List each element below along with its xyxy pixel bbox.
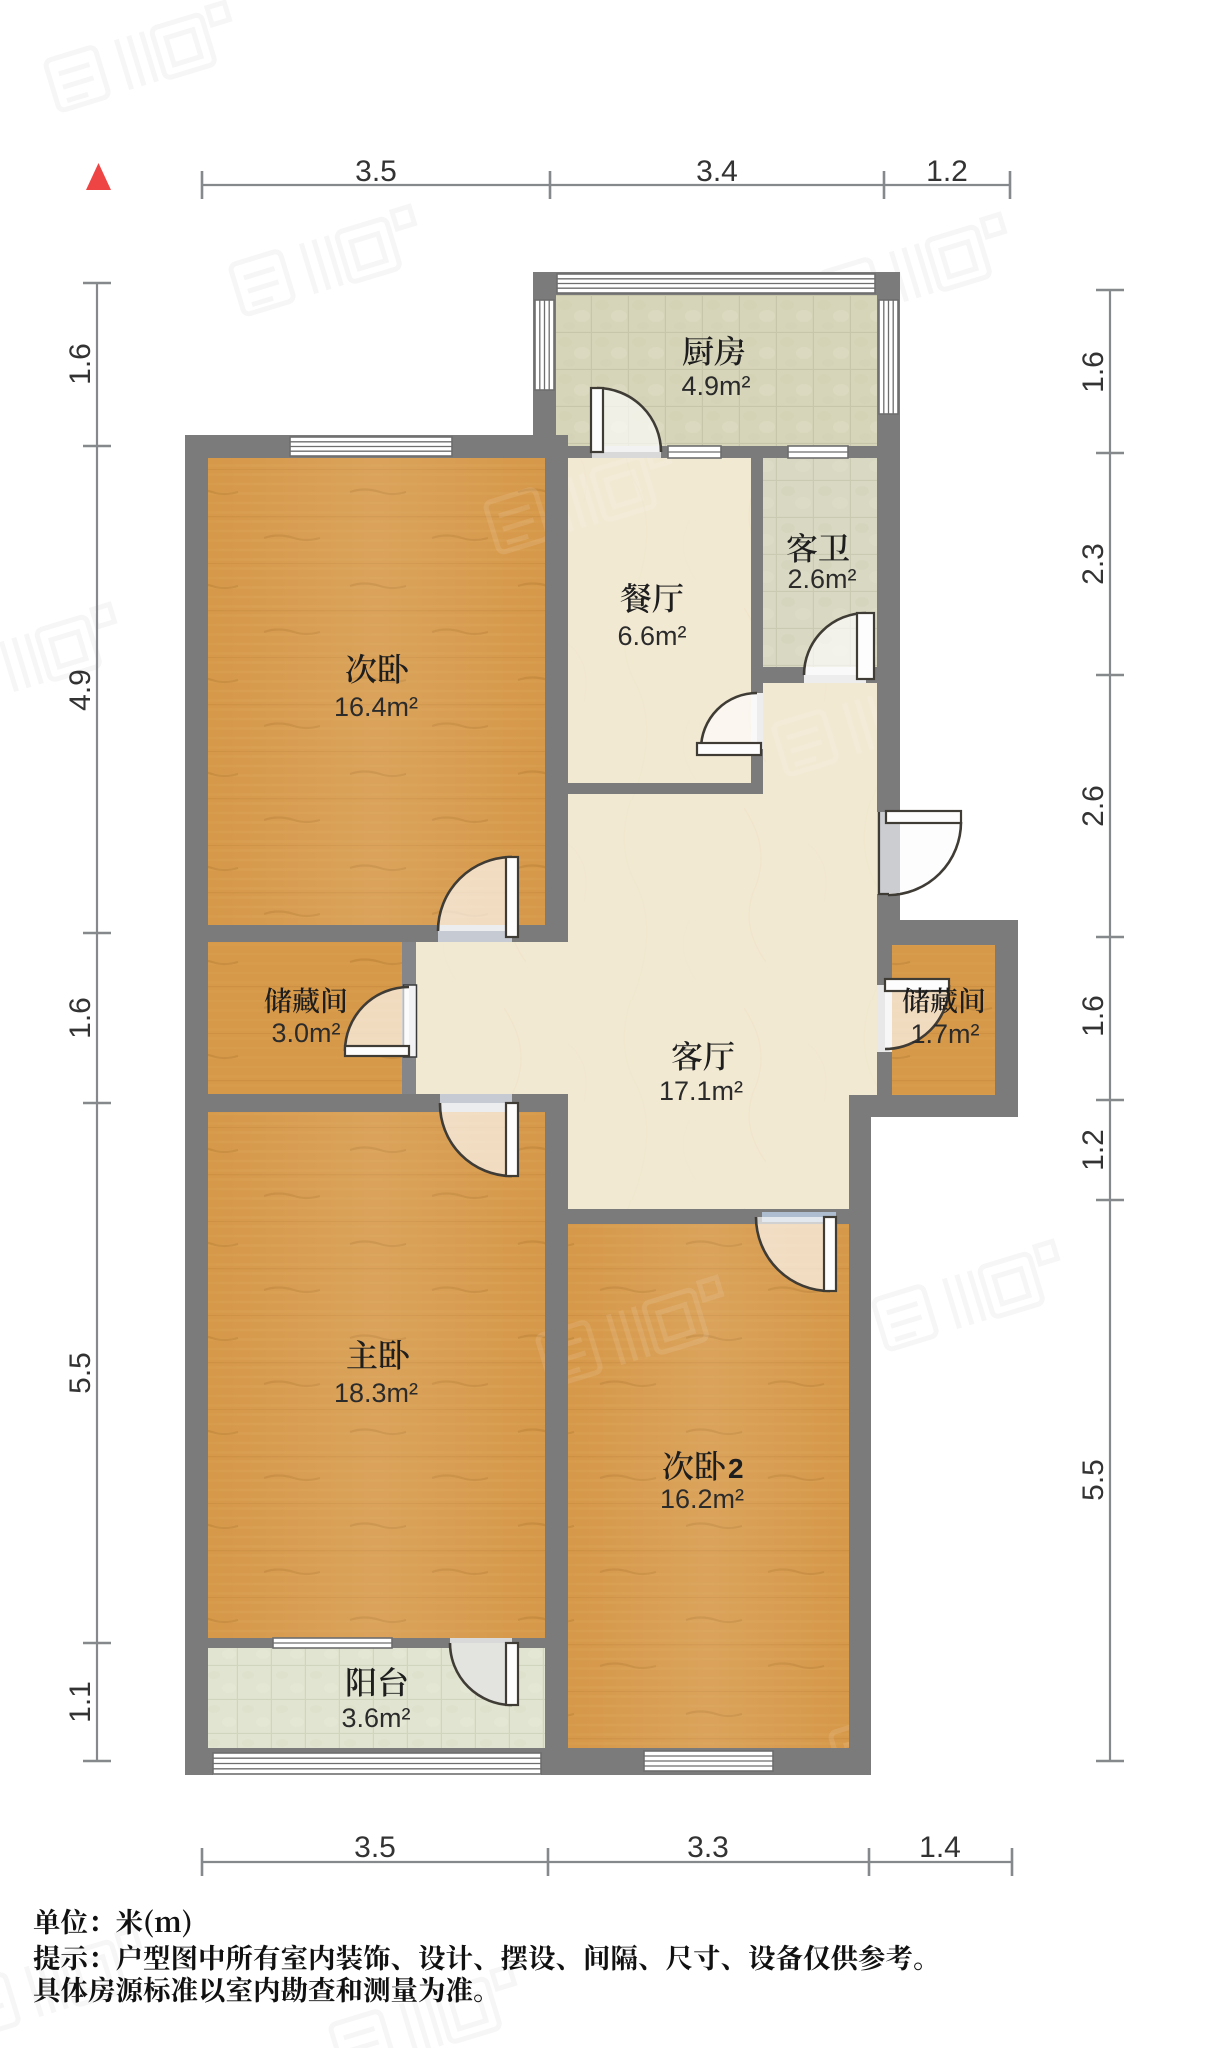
svg-text:3.5: 3.5 bbox=[354, 1831, 396, 1864]
svg-text:4.9m²: 4.9m² bbox=[681, 371, 750, 401]
svg-text:16.4m²: 16.4m² bbox=[334, 692, 418, 722]
svg-text:3.5: 3.5 bbox=[355, 155, 397, 188]
svg-text:1.6: 1.6 bbox=[64, 997, 97, 1039]
svg-text:2: 2 bbox=[728, 1453, 744, 1484]
svg-text:1.6: 1.6 bbox=[1077, 351, 1110, 393]
svg-text:6.6m²: 6.6m² bbox=[617, 621, 686, 651]
svg-text:17.1m²: 17.1m² bbox=[659, 1076, 743, 1106]
svg-text:4.9: 4.9 bbox=[64, 669, 97, 711]
svg-text:1.1: 1.1 bbox=[64, 1681, 97, 1723]
svg-text:3.4: 3.4 bbox=[696, 155, 738, 188]
svg-text:5.5: 5.5 bbox=[1077, 1459, 1110, 1501]
svg-text:5.5: 5.5 bbox=[64, 1352, 97, 1394]
svg-text:2.3: 2.3 bbox=[1077, 543, 1110, 585]
svg-text:1.6: 1.6 bbox=[64, 343, 97, 385]
svg-text:1.2: 1.2 bbox=[1077, 1129, 1110, 1171]
svg-text:1.6: 1.6 bbox=[1077, 995, 1110, 1037]
svg-text:2.6: 2.6 bbox=[1077, 785, 1110, 827]
svg-text:1.2: 1.2 bbox=[926, 155, 968, 188]
svg-text:3.6m²: 3.6m² bbox=[341, 1703, 410, 1733]
svg-text:2.6m²: 2.6m² bbox=[787, 564, 856, 594]
svg-text:1.4: 1.4 bbox=[919, 1831, 961, 1864]
svg-text:16.2m²: 16.2m² bbox=[660, 1484, 744, 1514]
svg-text:1.7m²: 1.7m² bbox=[910, 1019, 979, 1049]
svg-text:18.3m²: 18.3m² bbox=[334, 1378, 418, 1408]
svg-text:3.0m²: 3.0m² bbox=[271, 1018, 340, 1048]
svg-text:3.3: 3.3 bbox=[687, 1831, 729, 1864]
